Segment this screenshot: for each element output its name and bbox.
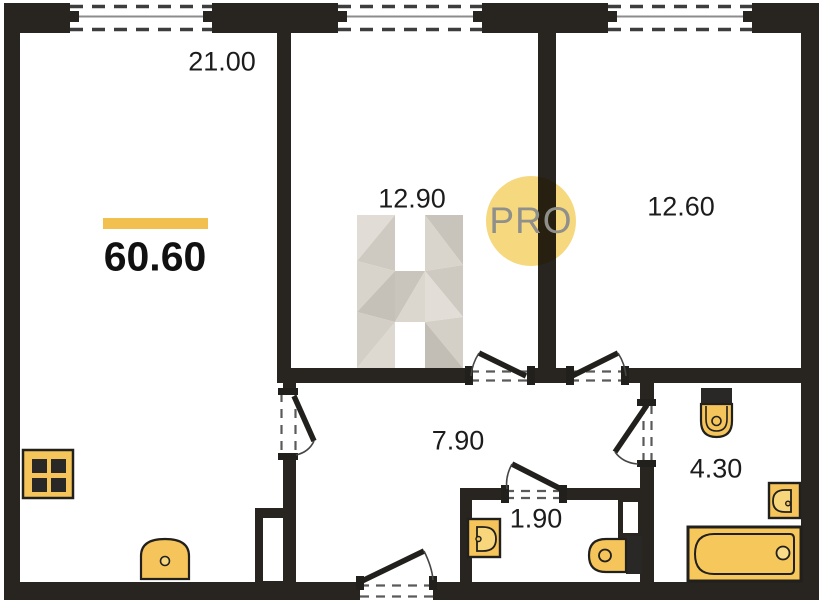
wc-sink-icon [468,519,500,557]
area-label-wc: 1.90 [510,504,563,535]
door-living-icon [278,388,314,460]
total-area-accent-bar [103,218,208,229]
floor-plan: PRO 60.60 21.00 12.90 12.60 7.90 1.90 4.… [0,0,823,600]
total-area-value: 60.60 [104,234,207,281]
door-entrance-icon [356,551,437,597]
kitchen-sink-icon [141,539,189,580]
h-logo-watermark [357,215,463,368]
area-label-living: 21.00 [188,47,256,78]
window-2-icon [338,7,482,30]
area-label-room3: 12.60 [647,192,715,223]
bathtub-icon [688,527,801,581]
window-3-icon [608,7,752,30]
area-label-room2: 12.90 [378,184,446,215]
door-bathroom-icon [615,399,656,467]
bathroom-toilet-icon [701,388,732,437]
door-wc-icon [501,464,567,503]
wc-toilet-icon [589,536,642,574]
bathroom-sink-icon [769,483,800,518]
area-label-bathroom: 4.30 [690,454,743,485]
plan-drawing [0,0,823,600]
door-room3-icon [566,353,629,385]
pro-watermark-text: PRO [489,200,572,242]
door-room2-icon [465,353,535,385]
area-label-hallway: 7.90 [432,426,485,457]
stove-icon [23,450,73,498]
window-1-icon [70,7,212,30]
